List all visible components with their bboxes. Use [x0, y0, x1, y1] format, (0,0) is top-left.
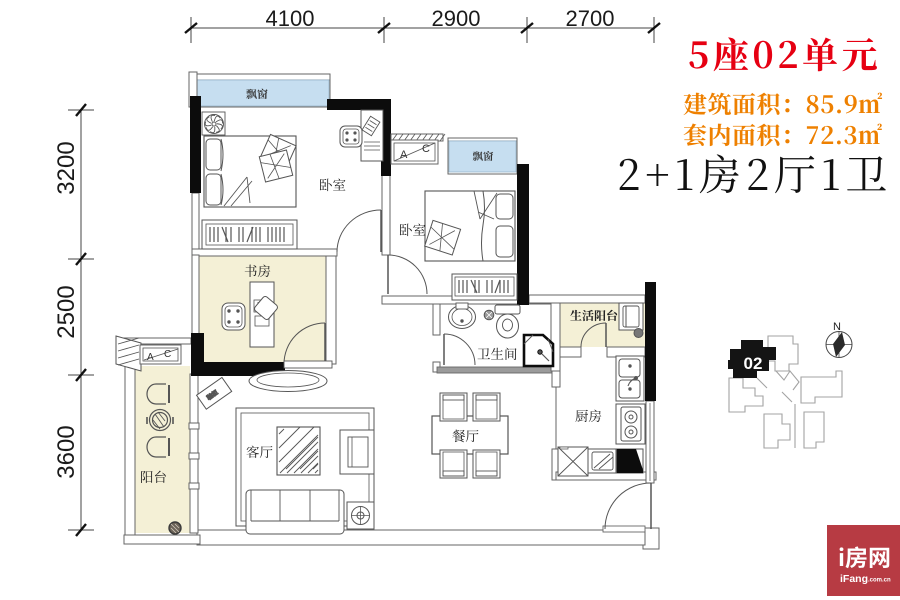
svg-text:A: A — [147, 352, 154, 363]
svg-text:N: N — [833, 321, 841, 333]
svg-text:C: C — [164, 349, 171, 360]
svg-text:3600: 3600 — [53, 425, 80, 478]
svg-text:2900: 2900 — [432, 6, 481, 31]
svg-text:4100: 4100 — [266, 6, 315, 31]
svg-text:A: A — [400, 149, 408, 161]
svg-text:2700: 2700 — [566, 6, 615, 31]
svg-text:02: 02 — [744, 354, 763, 373]
svg-text:2500: 2500 — [53, 285, 80, 338]
svg-text:3200: 3200 — [53, 141, 80, 194]
svg-text:C: C — [422, 143, 430, 155]
